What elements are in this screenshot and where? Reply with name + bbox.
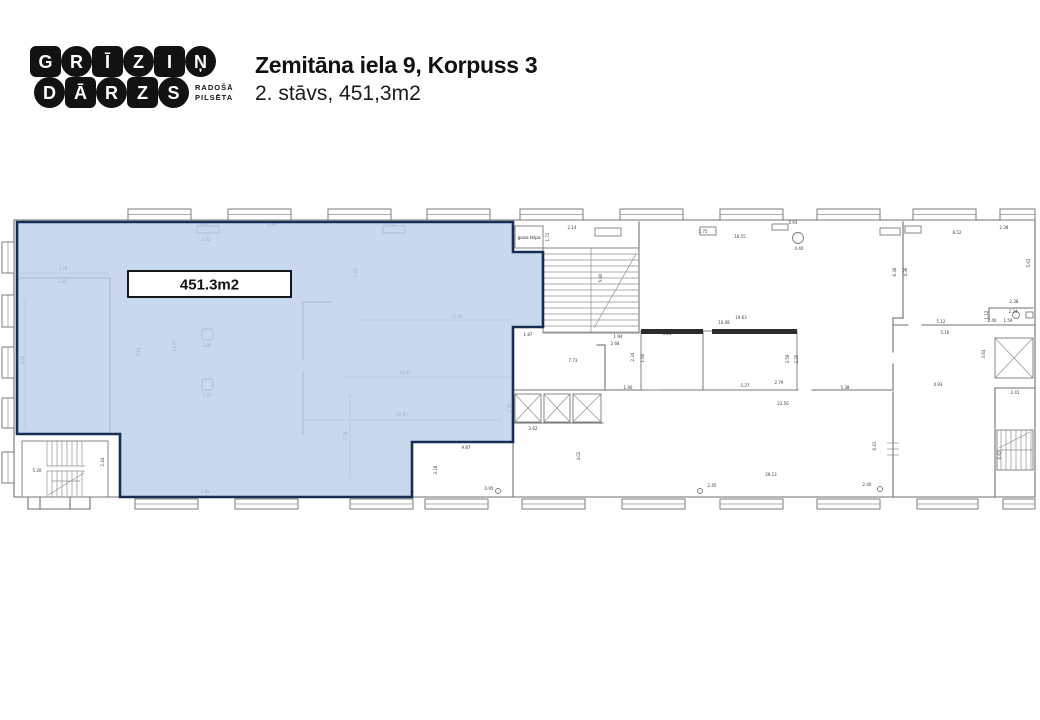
dimension-label: 16.55 — [734, 234, 746, 239]
dimension-label: 1.60 — [640, 353, 645, 362]
dimension-label: 2.41 — [1011, 390, 1020, 395]
dimension-label: 29.13 — [765, 472, 777, 477]
sill-detail — [1026, 312, 1033, 318]
fixture-circle — [698, 489, 703, 494]
stair-direction-line — [999, 432, 1030, 448]
fixture-circle — [496, 489, 501, 494]
dimension-label: 2.14 — [568, 225, 577, 230]
dimension-label: 1.87 — [524, 332, 533, 337]
dimension-label: 1.90 — [624, 385, 633, 390]
dimension-label: 5.27 — [741, 383, 750, 388]
dimension-label: 9.87 — [462, 445, 471, 450]
dimension-label: 3.62 — [529, 426, 538, 431]
dimension-label: 2.45 — [708, 483, 717, 488]
fixture-circle — [878, 487, 883, 492]
dimension-label: 1.72 — [545, 232, 550, 241]
dimension-label: 3.59 — [785, 354, 790, 363]
dimension-label: 2.25 — [794, 354, 799, 363]
dimension-label: 3.18 — [433, 465, 438, 474]
dimension-label: 6.41 — [872, 441, 877, 450]
page: GRĪZIŅDĀRZSRADOŠĀPILSĒTA Zemitāna iela 9… — [0, 0, 1040, 720]
dimension-label: 5.20 — [33, 468, 42, 473]
dimension-label: 2.24 — [1009, 309, 1018, 314]
stair-direction-line — [594, 254, 636, 328]
dimension-label: 1.75 — [699, 229, 708, 234]
dimension-label: 4.36 — [903, 267, 908, 276]
area-label: 451.3m2 — [180, 277, 239, 294]
dimension-label: 2.38 — [1000, 225, 1009, 230]
floor-plan-svg: gaisa telpa3.283.254.282.1814.777.4412.8… — [0, 0, 1040, 720]
dimension-label: 6.62 — [997, 450, 1002, 459]
dimension-label: 5.63 — [1026, 258, 1031, 267]
dimension-label: 6.36 — [892, 267, 897, 276]
dimension-label: 5.12 — [937, 319, 946, 324]
dimension-label: 3.64 — [981, 349, 986, 358]
dimension-label: 4.93 — [934, 382, 943, 387]
dimension-label: 4.02 — [576, 451, 581, 460]
dimension-label: 0.40 — [795, 246, 804, 251]
dimension-label: 19.63 — [735, 315, 747, 320]
dimension-label: 1.94 — [614, 334, 623, 339]
dimension-label: 8.52 — [953, 230, 962, 235]
dimension-label: 5.90 — [598, 273, 603, 282]
dimension-label: 23.56 — [777, 401, 789, 406]
dimension-label: 2.40 — [863, 482, 872, 487]
highlight-area — [17, 222, 543, 497]
sill-detail — [880, 228, 900, 235]
dimension-label: 2.34 — [630, 352, 635, 361]
fixture-circle — [793, 233, 804, 244]
dimension-label: 0.95 — [485, 486, 494, 491]
dimension-label: 2.38 — [1010, 299, 1019, 304]
dimension-label: 2.68 — [611, 341, 620, 346]
dimension-label: 1.12 — [984, 310, 989, 319]
air-space-label: gaisa telpa — [517, 235, 541, 240]
dimension-label: 2.44 — [100, 457, 105, 466]
dimension-label: 0.64 — [789, 220, 798, 225]
partition-wall — [712, 329, 797, 334]
dimension-label: 2.79 — [775, 380, 784, 385]
dimension-label: 10.08 — [718, 320, 730, 325]
stair-direction-line — [48, 473, 84, 495]
dimension-label: 3.26 — [663, 331, 672, 336]
sill-detail — [905, 226, 921, 233]
room-outline — [641, 331, 703, 390]
sill-detail — [772, 224, 788, 230]
dimension-label: 7.73 — [569, 358, 578, 363]
dimension-label: 1.59 — [1004, 318, 1013, 323]
partition-wall — [641, 329, 703, 334]
dimension-label: 5.38 — [841, 385, 850, 390]
dimension-label: 5.16 — [941, 330, 950, 335]
sill-detail — [595, 228, 621, 236]
